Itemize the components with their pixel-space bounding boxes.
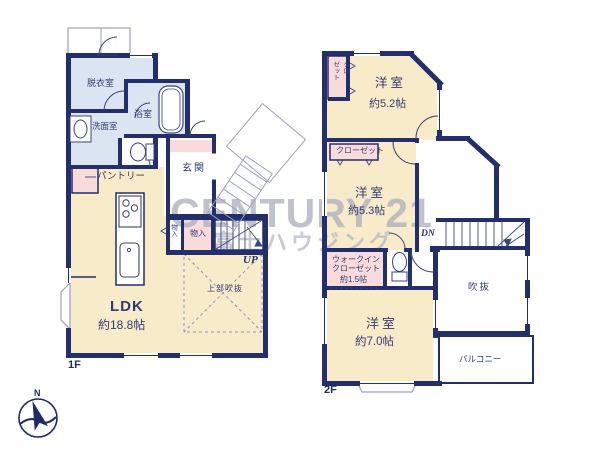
void-above-label: 上部吹抜 [207,285,243,293]
kitchen-island [116,193,144,285]
floor-plan: CENTURY 21 富士ハウジング [0,0,600,450]
room-size-ldk: 約18.8帖 [98,319,145,331]
kitchen-sink-icon [120,243,139,277]
closet-label-b: クローゼット [336,147,384,155]
room-label-storage-a: 物入 [169,224,176,237]
void-label: 吹抜 [468,283,491,293]
room-label-dressing: 脱衣室 [87,79,114,88]
bathtub-icon [159,86,183,133]
room-label-bedroom-a: 洋室 [375,77,406,90]
toilet-1f-icon [131,143,155,161]
room-label-ldk: LDK [110,299,144,314]
balcony-label: バルコニー [459,355,501,364]
room-label-washroom: 洗面室 [92,122,118,131]
floor-label-2f: 2F [324,385,337,396]
room-size-bedroom-a: 約5.2帖 [369,99,406,110]
compass-north-label: N [34,389,41,398]
walls-and-details-layer [0,0,600,450]
stairs-dn-label: DN [421,230,435,240]
room-label-storage-b: 物入 [190,230,206,238]
compass-icon [19,399,57,437]
room-size-bedroom-c: 約7.0帖 [355,337,394,349]
room-size-bedroom-b: 約5.3帖 [348,206,385,217]
wic-label-line1: ウォークイン [332,256,380,264]
wic-label-line2: クローゼット [332,265,380,273]
washbasin-icon [70,116,91,142]
stairs-up-label: UP [243,255,258,266]
stove-icon [119,196,141,227]
staircase-2f-steps [446,222,524,246]
room-label-bedroom-c: 洋室 [366,317,398,330]
outdoor-approach-stairs [208,104,306,231]
wic-size-label: 約1.5帖 [340,276,367,284]
room-label-bath: 浴室 [134,110,152,119]
staircase-1f-steps [215,220,263,250]
room-label-pantry: パントリー [97,172,145,182]
room-label-bedroom-b: 洋室 [355,187,386,200]
room-label-entrance: 玄関 [182,164,206,174]
toilet-2f-icon [392,253,407,282]
closet-label-a: クロー ゼット [330,61,350,81]
floor-label-1f: 1F [68,360,81,371]
